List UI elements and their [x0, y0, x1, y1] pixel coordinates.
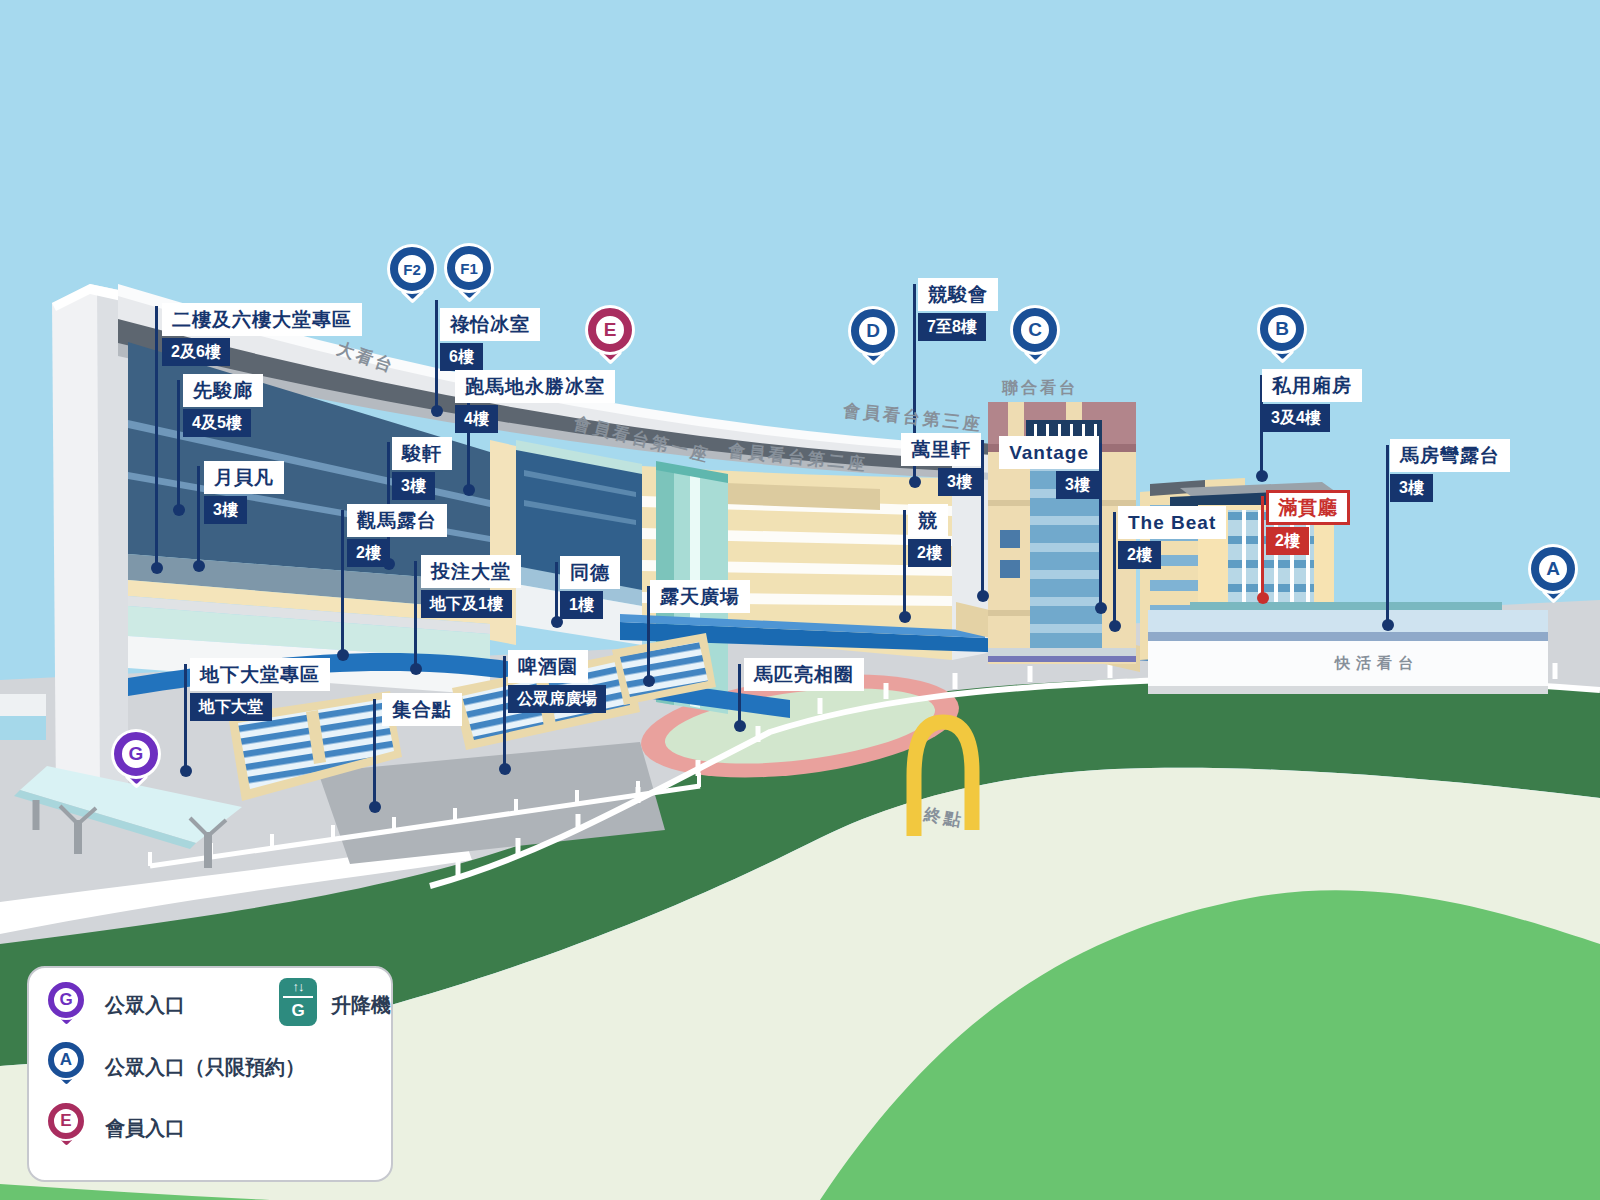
- annotation-happy-stand: 快活看台: [1335, 654, 1419, 673]
- callout-racing-club: 競駿會 7至8樓: [918, 278, 998, 341]
- legend-pin-g: G: [45, 982, 87, 1022]
- lift-letter: G: [291, 998, 304, 1024]
- callout-assembly-point: 集合點: [382, 693, 462, 726]
- lift-arrows-icon: ↑↓: [293, 978, 304, 996]
- legend-pin-e: E: [45, 1103, 87, 1143]
- leader-line: [503, 656, 506, 769]
- map-pin-g: G: [111, 732, 161, 781]
- callout-title: 同德: [560, 556, 620, 589]
- callout-private-boxes: 私用廂房 3及4樓: [1262, 369, 1362, 432]
- leader-line: [197, 466, 200, 566]
- leader-line: [981, 440, 984, 596]
- callout-title: 月貝凡: [204, 461, 284, 494]
- map-pin-b: B: [1257, 307, 1307, 356]
- pin-head: E: [48, 1103, 84, 1139]
- callout-vantage: Vantage 3樓: [999, 436, 1099, 499]
- callout-luk-yi-cafe: 祿怡冰室 6樓: [440, 308, 540, 371]
- leader-line: [435, 300, 438, 411]
- callout-floor: 4及5樓: [183, 409, 251, 437]
- pin-head: B: [1260, 307, 1304, 351]
- annotation-union-stand: 聯合看台: [1002, 378, 1078, 399]
- map-pin-f1: F1: [444, 246, 494, 295]
- callout-title: 駿軒: [392, 437, 452, 470]
- map-pin-f2: F2: [387, 247, 437, 296]
- callout-floor: 3樓: [1056, 471, 1099, 499]
- leader-line: [155, 306, 158, 568]
- map-pin-a: A: [1528, 547, 1578, 596]
- legend-pin-a: A: [45, 1042, 87, 1082]
- callout-title: 競: [908, 504, 948, 537]
- happy-valley-racecourse-map: 二樓及六樓大堂專區 2及6樓 先駿廊 4及5樓 月貝凡 3樓 祿怡冰室 6樓 跑…: [0, 0, 1600, 1200]
- callout-moon-bei-fan: 月貝凡 3樓: [204, 461, 284, 524]
- callout-floor: 4樓: [455, 405, 498, 433]
- lift-icon: ↑↓ G: [279, 978, 317, 1026]
- callout-lobby-2-6: 二樓及六樓大堂專區 2及6樓: [162, 303, 362, 366]
- callout-title: 跑馬地永勝冰室: [455, 370, 615, 403]
- leader-line: [341, 510, 344, 655]
- callout-title: 二樓及六樓大堂專區: [162, 303, 362, 336]
- happy-stand: [1148, 602, 1548, 694]
- callout-parade-ring: 馬匹亮相圈: [744, 658, 864, 691]
- callout-chun-hin: 駿軒 3樓: [392, 437, 452, 500]
- callout-wing-sing-cafe: 跑馬地永勝冰室 4樓: [455, 370, 615, 433]
- callout-pioneers: 先駿廊 4及5樓: [183, 374, 263, 437]
- pin-head: G: [114, 732, 158, 776]
- pin-head: A: [48, 1042, 84, 1078]
- pin-head: E: [588, 308, 632, 352]
- pin-head: F1: [447, 246, 491, 290]
- callout-title: 滿貫廳: [1266, 490, 1350, 525]
- callout-man-li-hin: 萬里軒 3樓: [901, 433, 981, 496]
- legend-members-entrance-label: 會員入口: [105, 1115, 185, 1142]
- callout-floor: 6樓: [440, 343, 483, 371]
- callout-open-plaza: 露天廣場: [650, 580, 750, 613]
- left-tower: [52, 284, 128, 798]
- leader-line: [1386, 445, 1389, 625]
- map-pin-c: C: [1010, 308, 1060, 357]
- callout-floor: 公眾席廣場: [508, 685, 606, 713]
- leader-line: [1099, 443, 1102, 608]
- callout-title: The Beat: [1118, 506, 1226, 539]
- callout-floor: 1樓: [560, 591, 603, 619]
- leader-line: [1113, 512, 1116, 626]
- leader-line-red: [1261, 496, 1264, 598]
- callout-title: 投注大堂: [421, 555, 521, 588]
- callout-stable-bend-terrace: 馬房彎露台 3樓: [1390, 439, 1510, 502]
- callout-the-beat: The Beat 2樓: [1118, 506, 1226, 569]
- callout-king: 競 2樓: [908, 504, 951, 567]
- callout-beer-garden: 啤酒園 公眾席廣場: [508, 650, 606, 713]
- leader-line: [738, 664, 741, 726]
- leader-line: [903, 510, 906, 617]
- callout-floor: 3樓: [1390, 474, 1433, 502]
- callout-floor: 3樓: [204, 496, 247, 524]
- callout-title: 競駿會: [918, 278, 998, 311]
- callout-floor: 3及4樓: [1262, 404, 1330, 432]
- callout-tung-tak: 同德 1樓: [560, 556, 620, 619]
- callout-title: 地下大堂專區: [190, 658, 330, 691]
- callout-floor: 2樓: [908, 539, 951, 567]
- callout-title: 萬里軒: [901, 433, 981, 466]
- callout-floor: 3樓: [938, 468, 981, 496]
- leader-line: [177, 380, 180, 510]
- leader-line: [373, 699, 376, 807]
- callout-floor: 地下及1樓: [421, 590, 512, 618]
- pin-head: G: [48, 982, 84, 1018]
- callout-lower-lobby: 地下大堂專區 地下大堂: [190, 658, 330, 721]
- callout-title: 先駿廊: [183, 374, 263, 407]
- map-pin-d: D: [848, 309, 898, 358]
- callout-title: 集合點: [382, 693, 462, 726]
- legend-card: G 公眾入口 ↑↓ G 升降機 A 公眾入口（只限預約） E 會員入口: [27, 966, 393, 1182]
- callout-betting-hall: 投注大堂 地下及1樓: [421, 555, 521, 618]
- legend-lift-label: 升降機: [331, 992, 391, 1019]
- callout-title: 露天廣場: [650, 580, 750, 613]
- callout-floor: 2及6樓: [162, 338, 230, 366]
- callout-moon-koon: 滿貫廳 2樓: [1266, 490, 1350, 555]
- leader-line: [555, 562, 558, 622]
- callout-title: 祿怡冰室: [440, 308, 540, 341]
- callout-title: 觀馬露台: [347, 504, 447, 537]
- callout-title: Vantage: [999, 436, 1099, 469]
- pin-head: C: [1013, 308, 1057, 352]
- pin-head: F2: [390, 247, 434, 291]
- legend-public-entrance-label: 公眾入口: [105, 992, 185, 1019]
- legend-public-entrance-reserved-label: 公眾入口（只限預約）: [105, 1054, 305, 1081]
- pin-head: D: [851, 309, 895, 353]
- callout-floor: 2樓: [1118, 541, 1161, 569]
- leader-line: [184, 664, 187, 771]
- callout-floor: 3樓: [392, 472, 435, 500]
- callout-floor: 7至8樓: [918, 313, 986, 341]
- callout-title: 馬房彎露台: [1390, 439, 1510, 472]
- callout-floor: 地下大堂: [190, 693, 272, 721]
- callout-title: 啤酒園: [508, 650, 588, 683]
- callout-floor: 2樓: [347, 539, 390, 567]
- callout-title: 私用廂房: [1262, 369, 1362, 402]
- map-pin-e: E: [585, 308, 635, 357]
- callout-floor: 2樓: [1266, 527, 1309, 555]
- leader-line: [414, 561, 417, 669]
- callout-title: 馬匹亮相圈: [744, 658, 864, 691]
- pin-head: A: [1531, 547, 1575, 591]
